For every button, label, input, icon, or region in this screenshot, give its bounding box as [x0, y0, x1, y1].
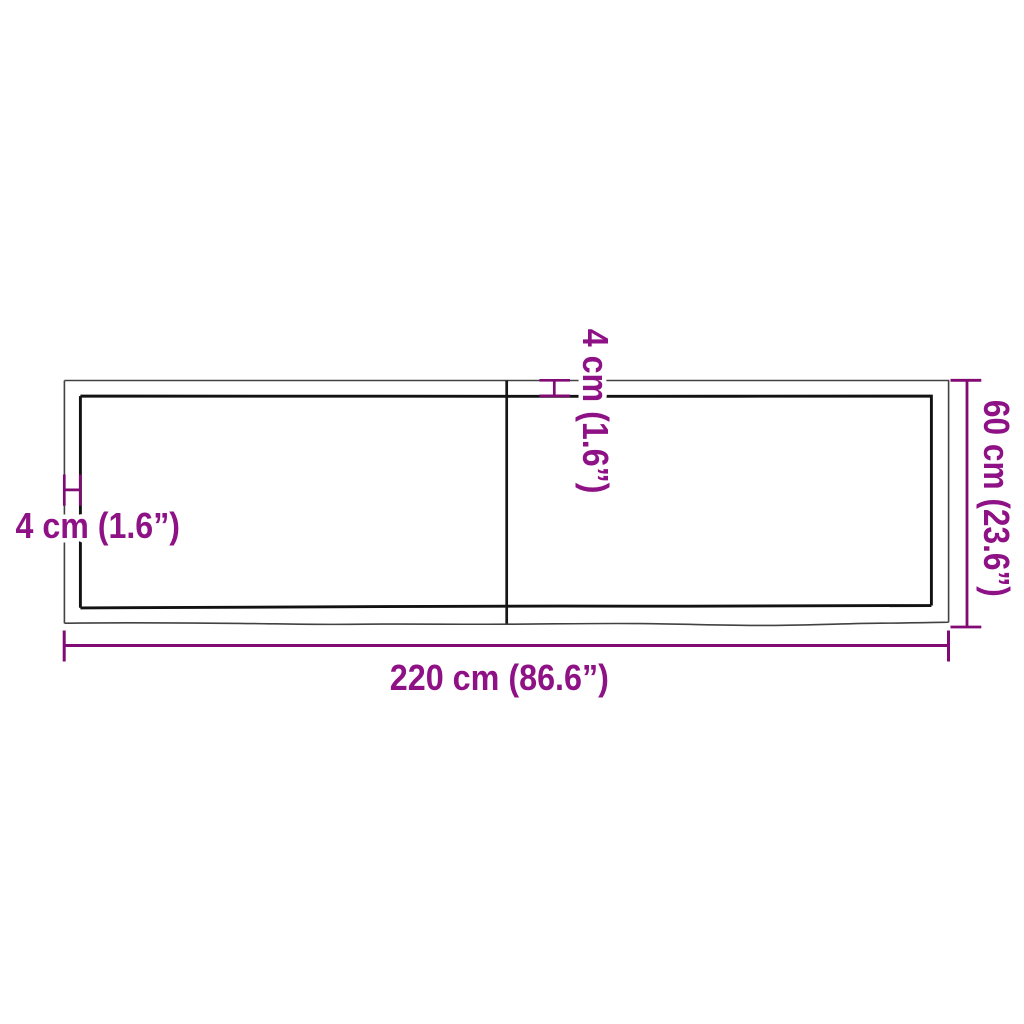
svg-text:220 cm (86.6”): 220 cm (86.6”)	[390, 657, 609, 698]
svg-text:4 cm (1.6”): 4 cm (1.6”)	[16, 505, 181, 546]
svg-text:4 cm (1.6”): 4 cm (1.6”)	[575, 329, 616, 494]
svg-text:60 cm (23.6”): 60 cm (23.6”)	[976, 400, 1017, 597]
